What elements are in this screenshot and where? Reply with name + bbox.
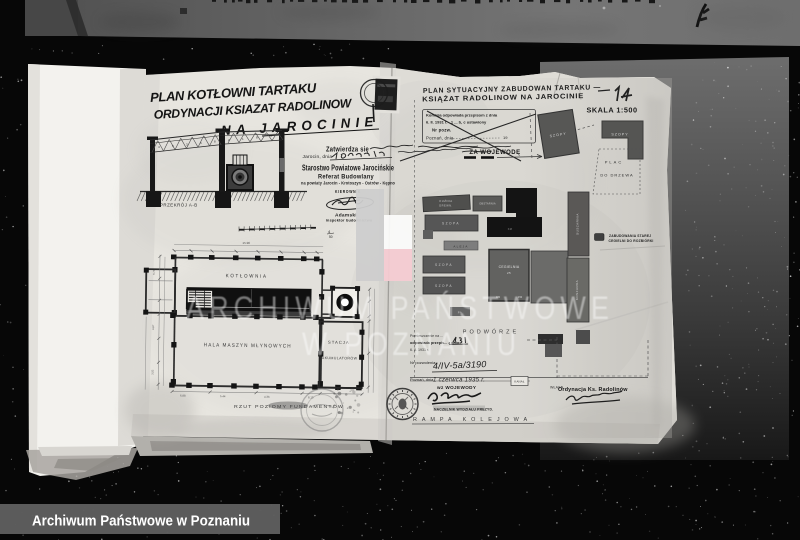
- svg-text:RZUT POZIOMY FUNDAMENTÓW: RZUT POZIOMY FUNDAMENTÓW: [234, 403, 344, 409]
- svg-text:Archiwum Państwowe w Poznaniu: Archiwum Państwowe w Poznaniu: [32, 513, 250, 530]
- svg-text:50: 50: [329, 235, 333, 239]
- svg-text:ALEJA: ALEJA: [453, 245, 468, 249]
- svg-text:KANAŁ: KANAŁ: [514, 380, 524, 384]
- svg-text:Starostwo Powiatowe Jarociński: Starostwo Powiatowe Jarocińskie: [302, 164, 394, 173]
- svg-text:ARCHIWUM PAŃSTWOWE: ARCHIWUM PAŃSTWOWE: [186, 290, 614, 326]
- svg-text:wz WOJEWODY: wz WOJEWODY: [436, 385, 476, 390]
- svg-text:SZOPA: SZOPA: [442, 222, 460, 226]
- svg-text:19: 19: [503, 135, 508, 140]
- svg-text:PRZEKRÓJ A-B: PRZEKRÓJ A-B: [160, 203, 198, 208]
- svg-text:15.96: 15.96: [242, 241, 250, 245]
- svg-text:Poznań, dnia: Poznań, dnia: [426, 136, 454, 141]
- svg-text:CEGIELNI DO ROZBIÓRKI: CEGIELNI DO ROZBIÓRKI: [609, 238, 654, 243]
- svg-text:6. II. 1931 r. - 1 ... b, c us: 6. II. 1931 r. - 1 ... b, c ustawiony: [426, 120, 487, 125]
- svg-text:1 czerwca 1935 r.: 1 czerwca 1935 r.: [433, 378, 485, 384]
- svg-text:RAMPA KOLEJOWA: RAMPA KOLEJOWA: [413, 417, 532, 423]
- svg-text:SZOPY: SZOPY: [611, 133, 628, 137]
- svg-text:SZOPA: SZOPA: [435, 263, 453, 267]
- svg-text:Poznań, dnia: Poznań, dnia: [410, 377, 434, 382]
- svg-text:Nr pozw.: Nr pozw.: [432, 128, 451, 133]
- svg-text:NACZELNIK WYDZIAŁU PREZYD.: NACZELNIK WYDZIAŁU PREZYD.: [434, 408, 493, 412]
- svg-text:SZOPA: SZOPA: [435, 284, 453, 288]
- svg-text:4.33: 4.33: [264, 395, 270, 399]
- svg-text:5.44: 5.44: [220, 394, 226, 398]
- svg-text:na powiaty Jarocin - Krotoszyn: na powiaty Jarocin - Krotoszyn - Ostrów …: [301, 180, 395, 185]
- svg-text:3,52: 3,52: [150, 369, 154, 375]
- svg-text:6,87: 6,87: [151, 324, 155, 330]
- svg-text:HALA MASZYN MŁYNOWYCH: HALA MASZYN MŁYNOWYCH: [204, 342, 292, 349]
- svg-text:KUŹNIA: KUŹNIA: [439, 198, 452, 203]
- svg-text:SKALA 1:500: SKALA 1:500: [587, 106, 638, 115]
- svg-text:DO DRZEWA: DO DRZEWA: [600, 173, 633, 178]
- svg-text:CEGIELNIA: CEGIELNIA: [499, 265, 520, 269]
- svg-text:W POZNANIU: W POZNANIU: [302, 326, 521, 362]
- svg-text:ZABUDOWANIA STAREJ: ZABUDOWANIA STAREJ: [609, 234, 651, 238]
- svg-text:6.88: 6.88: [180, 394, 186, 398]
- svg-text:DREWN.: DREWN.: [439, 204, 453, 208]
- svg-text:SUSZARNIA: SUSZARNIA: [576, 213, 580, 235]
- svg-text:25: 25: [507, 271, 511, 275]
- svg-text:PLAC: PLAC: [605, 160, 623, 165]
- svg-text:KOTŁOWNIA: KOTŁOWNIA: [226, 273, 268, 280]
- svg-text:Jarocin, dnia: Jarocin, dnia: [303, 154, 333, 160]
- svg-text:ZA WOJEWODĘ: ZA WOJEWODĘ: [469, 150, 520, 156]
- svg-text:Zatwierdza się: Zatwierdza się: [326, 147, 369, 154]
- svg-text:OBSTARNIA: OBSTARNIA: [479, 202, 496, 206]
- svg-text:5,74: 5,74: [152, 269, 156, 275]
- svg-text:KM: KM: [508, 227, 513, 231]
